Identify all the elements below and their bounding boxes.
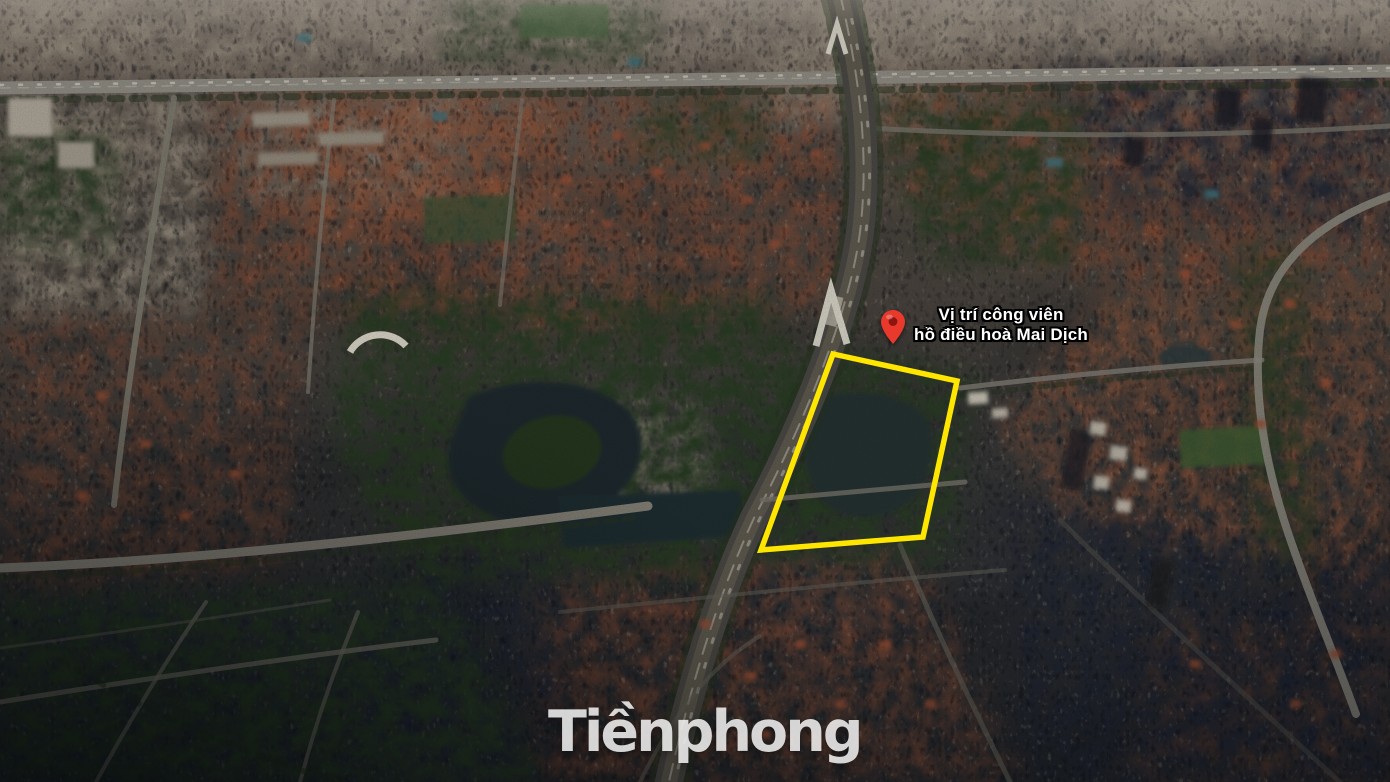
label-line-1: Vị trí công viên [885, 305, 1117, 325]
atmosphere-layer [0, 0, 1390, 782]
satellite-imagery [0, 0, 1390, 782]
watermark-logo: Tiềnphong [548, 704, 861, 761]
satellite-map-view: Vị trí công viên hồ điều hoà Mai Dịch Ti… [0, 0, 1390, 782]
map-annotation-label: Vị trí công viên hồ điều hoà Mai Dịch [885, 305, 1117, 345]
label-line-2: hồ điều hoà Mai Dịch [885, 325, 1117, 345]
